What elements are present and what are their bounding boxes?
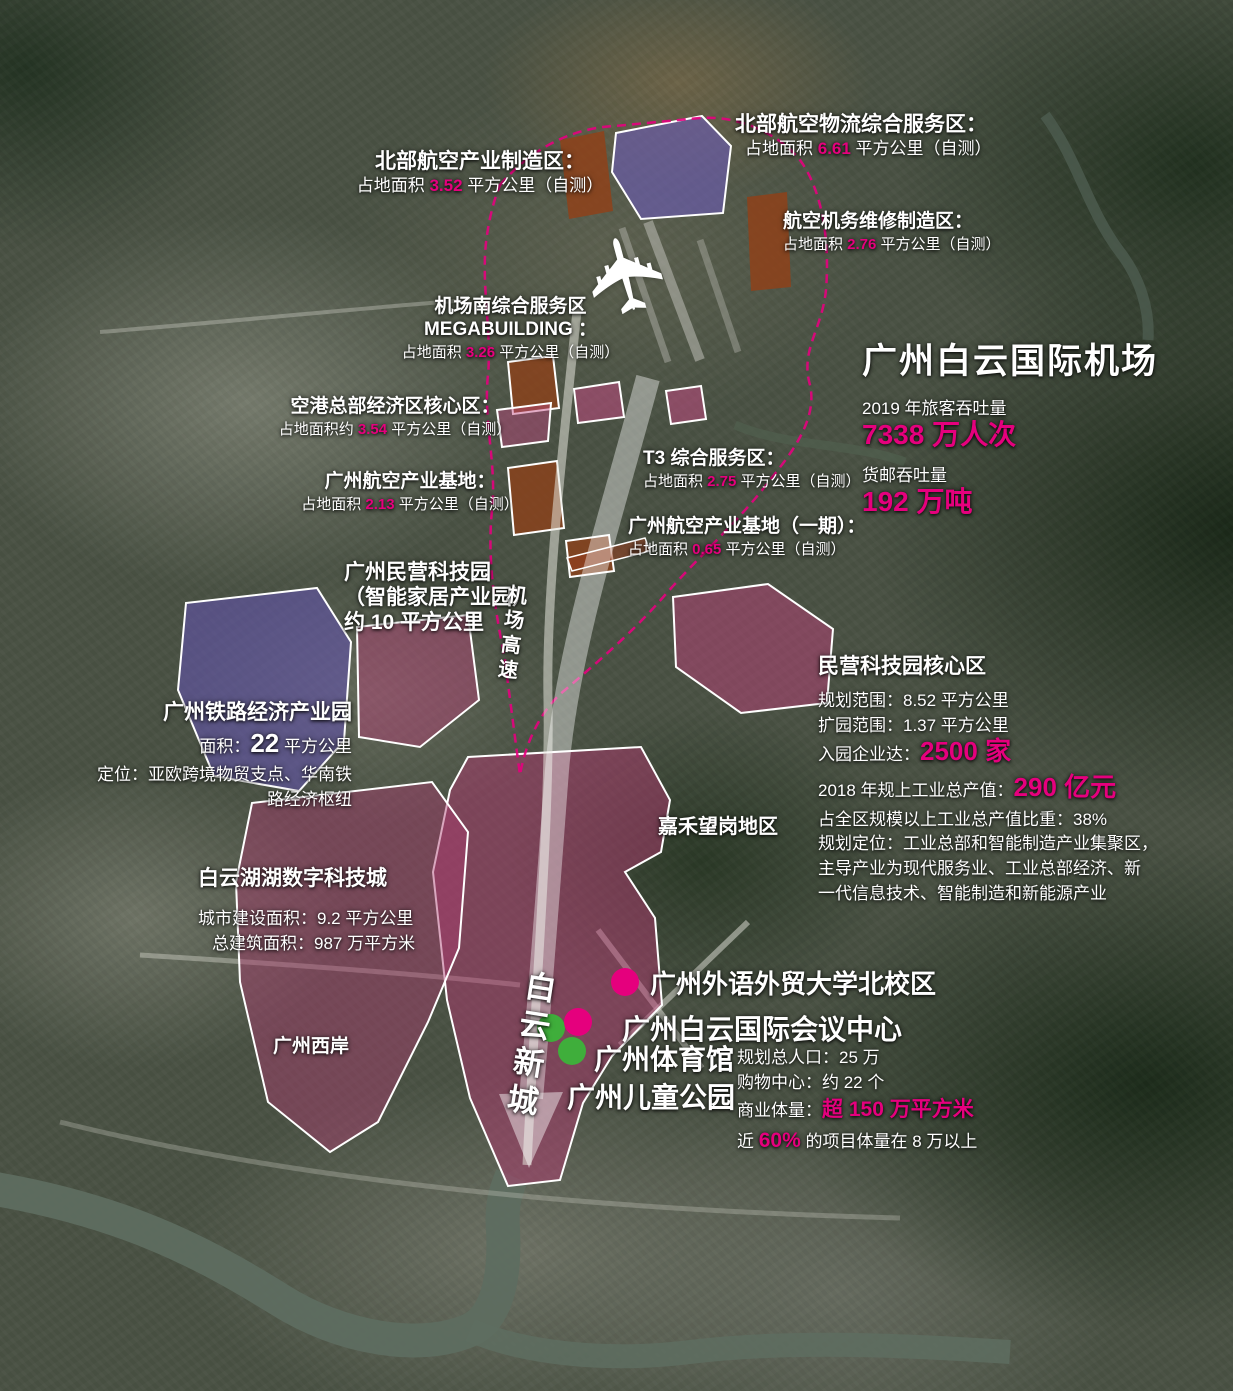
area-pre: 占地面积约	[279, 421, 358, 438]
baiyun-lake-block: 白云湖湖数字科技城 城市建设面积：9.2 平方公里 总建筑面积：987 万平方米	[198, 866, 415, 956]
passenger-value: 7338 万人次	[862, 419, 1158, 451]
area-post: 平方公里（自测）	[721, 541, 845, 558]
area-pre: 占地面积	[628, 541, 692, 558]
railway-park-position2: 路经济枢纽	[97, 788, 352, 813]
label-t3-service: T3 综合服务区： 占地面积 2.75 平方公里（自测）	[643, 448, 861, 493]
conference-center-dot	[564, 1008, 592, 1036]
area-value: 6.61	[818, 139, 851, 158]
new-town-stats-block: 规划总人口：25 万 购物中心：约 22 个 商业体量：超 150 万平方米 近…	[737, 1046, 977, 1156]
university-dot	[611, 968, 639, 996]
cargo-value: 192 万吨	[862, 486, 1158, 518]
core-zone-scope2: 扩园范围：1.37 平方公里	[818, 714, 1158, 739]
label-north-manufacturing: 北部航空产业制造区： 占地面积 3.52 平方公里（自测）	[330, 149, 630, 199]
area-post: 平方公里（自测）	[387, 421, 511, 438]
university-text: 广州外语外贸大学北校区	[650, 969, 936, 999]
label-aviation-base: 广州航空产业基地： 占地面积 2.13 平方公里（自测）	[280, 471, 540, 516]
area-pre: 占地面积	[643, 473, 707, 490]
baiyun-lake-line2: 总建筑面积：987 万平方米	[212, 932, 415, 957]
stats-line3: 商业体量：超 150 万平方米	[737, 1095, 977, 1125]
area-post: 平方公里（自测）	[495, 344, 619, 361]
zone-area-line: 占地面积 3.52 平方公里（自测）	[330, 174, 630, 199]
output-pre: 2018 年规上工业总产值：	[818, 781, 1014, 800]
core-zone-scope1: 规划范围：8.52 平方公里	[818, 689, 1158, 714]
zone-area-line: 占地面积 6.61 平方公里（自测）	[745, 137, 992, 162]
jiahe-text: 嘉禾望岗地区	[658, 816, 778, 838]
label-airport-hq: 空港总部经济区核心区： 占地面积约 3.54 平方公里（自测）	[265, 396, 525, 441]
label-aviation-maintenance: 航空机务维修制造区： 占地面积 2.76 平方公里（自测）	[783, 211, 1001, 256]
zone-title: 北部航空物流综合服务区：	[735, 112, 992, 137]
railway-park-position1: 定位：亚欧跨境物贸支点、华南铁	[97, 763, 352, 788]
area-value: 2.76	[847, 236, 876, 253]
enterprises-value: 2500 家	[920, 736, 1011, 766]
core-zone-title: 民营科技园核心区	[818, 654, 1158, 679]
zone-area-line: 占地面积 2.76 平方公里（自测）	[783, 234, 1001, 256]
map-canvas: ✈ 北部航空物流综合服务区： 占地面积 6.61 平方公里（自测） 北部航空产业…	[0, 0, 1233, 1391]
zone-title: 机场南综合服务区	[398, 296, 623, 319]
area-pre: 占地面积	[357, 176, 430, 195]
area-value: 0.65	[692, 541, 721, 558]
airport-title: 广州白云国际机场	[862, 333, 1158, 384]
output-value: 290 亿元	[1014, 772, 1117, 802]
zone-core-tech-park	[673, 584, 833, 713]
area-pre: 占地面积	[745, 139, 818, 158]
core-zone-position3: 一代信息技术、智能制造和新能源产业	[818, 882, 1158, 907]
core-zone-output: 2018 年规上工业总产值：290 亿元	[818, 774, 1158, 804]
stats-line3-pre: 商业体量：	[737, 1101, 822, 1120]
railway-park-block: 广州铁路经济产业园 面积：22 平方公里 定位：亚欧跨境物贸支点、华南铁 路经济…	[97, 700, 352, 812]
baiyun-lake-line1: 城市建设面积：9.2 平方公里	[198, 907, 415, 932]
cargo-label: 货邮吞吐量	[862, 461, 1158, 486]
stats-line1: 规划总人口：25 万	[737, 1046, 977, 1071]
area-pre: 占地面积	[402, 344, 466, 361]
zone-title: T3 综合服务区：	[643, 448, 861, 471]
zone-title: 广州航空产业基地（一期）：	[628, 516, 866, 539]
zone-baiyun-lake	[236, 782, 468, 1152]
passenger-label: 2019 年旅客吞吐量	[862, 394, 1158, 419]
zone-title-en: MEGABUILDING ：	[398, 319, 623, 342]
area-value: 3.52	[429, 176, 462, 195]
core-zone-position1: 规划定位：工业总部和智能制造产业集聚区，	[818, 832, 1158, 857]
children-park-text: 广州儿童公园	[567, 1082, 735, 1113]
zone-title: 北部航空产业制造区：	[330, 149, 630, 174]
tech-park-line1: 广州民营科技园	[344, 560, 533, 585]
zone-pink-terminal-2	[666, 386, 706, 424]
zone-title: 航空机务维修制造区：	[783, 211, 1001, 234]
stats-line4-value: 60%	[759, 1129, 801, 1152]
children-park-dot	[558, 1037, 586, 1065]
label-north-logistics: 北部航空物流综合服务区： 占地面积 6.61 平方公里（自测）	[735, 112, 992, 162]
core-zone-position2: 主导产业为现代服务业、工业总部经济、新	[818, 857, 1158, 882]
baiyun-lake-title: 白云湖湖数字科技城	[198, 866, 415, 891]
core-zone-enterprises: 入园企业达：2500 家	[818, 738, 1158, 768]
zone-pink-terminal-1	[574, 382, 624, 423]
stats-line4-post: 的项目体量在 8 万以上	[801, 1132, 978, 1151]
stats-line2: 购物中心：约 22 个	[737, 1071, 977, 1096]
stats-line4-pre: 近	[737, 1132, 759, 1151]
railway-park-title: 广州铁路经济产业园	[97, 700, 352, 725]
railway-area-pre: 面积：	[199, 737, 250, 756]
zone-area-line: 占地面积约 3.54 平方公里（自测）	[265, 419, 525, 441]
area-post: 平方公里（自测）	[395, 496, 519, 513]
zone-title: 广州航空产业基地：	[280, 471, 540, 494]
zone-area-line: 占地面积 0.65 平方公里（自测）	[628, 539, 866, 561]
railway-area-value: 22	[250, 728, 279, 758]
river-northeast	[1045, 115, 1148, 340]
label-south-service: 机场南综合服务区 MEGABUILDING ： 占地面积 3.26 平方公里（自…	[398, 296, 623, 363]
area-value: 3.26	[466, 344, 495, 361]
zone-area-line: 占地面积 3.26 平方公里（自测）	[398, 342, 623, 364]
enterprises-pre: 入园企业达：	[818, 745, 920, 764]
label-west-bank: 广州西岸	[273, 1031, 349, 1058]
area-value: 3.54	[358, 421, 387, 438]
railway-park-area: 面积：22 平方公里	[97, 725, 352, 763]
core-zone-share: 占全区规模以上工业总产值比重：38%	[818, 808, 1158, 833]
area-pre: 占地面积	[301, 496, 365, 513]
stadium-text: 广州体育馆	[594, 1044, 734, 1075]
river-branch	[470, 1330, 1010, 1356]
label-university: 广州外语外贸大学北校区	[650, 964, 936, 1001]
runway-3	[700, 240, 738, 352]
area-post: 平方公里（自测）	[736, 473, 860, 490]
label-stadium: 广州体育馆	[594, 1038, 734, 1078]
zone-title: 空港总部经济区核心区：	[265, 396, 525, 419]
stats-line3-value: 超 150 万平方米	[822, 1098, 974, 1121]
zone-area-line: 占地面积 2.75 平方公里（自测）	[643, 471, 861, 493]
area-post: 平方公里（自测）	[463, 176, 604, 195]
area-value: 2.75	[707, 473, 736, 490]
label-children-park: 广州儿童公园	[567, 1076, 735, 1116]
area-pre: 占地面积	[783, 236, 847, 253]
core-zone-block: 民营科技园核心区 规划范围：8.52 平方公里 扩园范围：1.37 平方公里 入…	[818, 654, 1158, 906]
area-post: 平方公里（自测）	[851, 139, 992, 158]
railway-area-post: 平方公里	[279, 737, 352, 756]
zone-area-line: 占地面积 2.13 平方公里（自测）	[280, 494, 540, 516]
label-jiahe: 嘉禾望岗地区	[658, 810, 778, 839]
west-bank-text: 广州西岸	[273, 1036, 349, 1057]
area-value: 2.13	[365, 496, 394, 513]
river-main	[0, 1176, 512, 1340]
area-post: 平方公里（自测）	[876, 236, 1000, 253]
label-aviation-base-phase1: 广州航空产业基地（一期）： 占地面积 0.65 平方公里（自测）	[628, 516, 866, 561]
airport-title-block: 广州白云国际机场 2019 年旅客吞吐量 7338 万人次 货邮吞吐量 192 …	[862, 333, 1158, 518]
stats-line4: 近 60% 的项目体量在 8 万以上	[737, 1126, 977, 1156]
